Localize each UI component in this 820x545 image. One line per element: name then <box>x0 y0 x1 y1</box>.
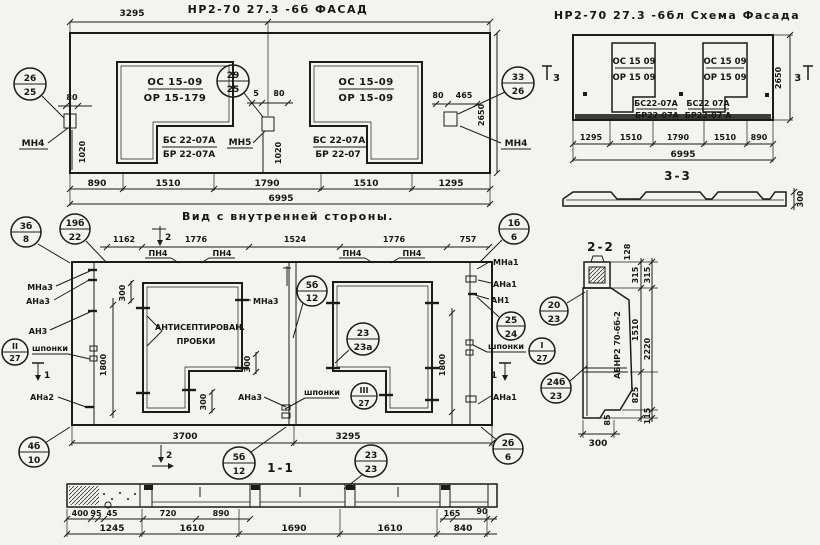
facade-window-2: ОС 15-09 ОР 15-09 БС 22-07А БР 22-07 <box>310 62 422 163</box>
callout-num: 23 <box>365 451 378 461</box>
callout-num: 27 <box>9 354 20 363</box>
dim-1776: 1776 <box>383 235 406 244</box>
dim-1245: 1245 <box>99 524 124 534</box>
window-mark: ОС 15 09 <box>703 57 746 67</box>
window-mark: ОС 15-09 <box>338 77 393 88</box>
callout-5b-12-top: 5б 12 <box>293 276 327 338</box>
callout-num: 26 <box>24 74 37 84</box>
scheme-window-b: ОС 15 09 ОР 15 09 БС22 07А БР22-07 А <box>685 43 747 120</box>
section-2-2-profile <box>583 288 632 418</box>
dim-45: 45 <box>106 509 118 518</box>
facade-bottom-dims: 890 1510 1790 1510 1295 6995 <box>67 173 493 207</box>
note-antiseptic: АНТИСЕПТИРОВАН. <box>155 323 245 332</box>
dim-1162: 1162 <box>113 235 135 244</box>
dim-315: 315 <box>643 266 652 283</box>
anchor-label: АНа1 <box>493 393 517 402</box>
section-3-3-profile <box>563 192 786 206</box>
anchor-label: МН4 <box>22 139 45 149</box>
callout-19b-22: 19б 22 <box>60 214 106 262</box>
anchor-label: АНа2 <box>30 393 54 402</box>
inner-opening-2 <box>326 282 439 412</box>
sill-mark: БС 22-07А <box>313 136 365 146</box>
callout-20-23: 20 23 <box>540 292 585 325</box>
callout-num: 23а <box>354 343 373 353</box>
callout-num: 12 <box>306 294 319 304</box>
anchor-label: МН5 <box>229 138 252 148</box>
inner-left-labels: МНа3 АНа3 АН3 шпонки II 27 1 АНа2 <box>2 270 97 407</box>
dim-1510: 1510 <box>631 318 640 341</box>
dim-90: 90 <box>476 507 488 516</box>
anchor-mn4-left: 80 1020 26 25 МН4 <box>14 68 92 170</box>
pn4-label: ПН4 <box>213 249 232 258</box>
callout-num: 23 <box>357 329 370 339</box>
dim-80: 80 <box>273 89 285 98</box>
dim-1524: 1524 <box>284 235 307 244</box>
section-mark-label: 1 <box>44 371 50 381</box>
dim-1776: 1776 <box>185 235 208 244</box>
callout-num: 8 <box>23 235 29 245</box>
section-1-1: 400 95 45 720 890 165 90 1245 1610 1690 … <box>64 484 497 537</box>
dim-115: 115 <box>643 407 652 424</box>
dim-1610: 1610 <box>179 524 204 534</box>
dim-6995: 6995 <box>670 150 695 160</box>
callout-num: 27 <box>358 399 369 408</box>
callout-num: 29 <box>227 71 240 81</box>
callout-num: 1б <box>508 218 521 229</box>
section-1-1-label: 1-1 <box>267 461 295 475</box>
callout-num: I <box>541 341 544 350</box>
dim-300: 300 <box>243 355 252 372</box>
section-mark-label: 2 <box>166 451 172 461</box>
dim-1020: 1020 <box>274 141 283 164</box>
dim-95: 95 <box>90 509 102 518</box>
shponki-label: шпонки <box>32 344 68 353</box>
dim-1510: 1510 <box>155 179 180 189</box>
dim-300: 300 <box>199 393 208 410</box>
section-mark-label: 1 <box>491 371 497 381</box>
dim-2650: 2650 <box>477 103 486 126</box>
callout-num: 25 <box>505 316 518 326</box>
dim-840: 840 <box>454 524 473 534</box>
dim-315: 315 <box>631 266 640 283</box>
inner-bottom-dims: 3700 3295 <box>69 425 495 446</box>
anchor-label: МНа3 <box>27 283 53 292</box>
anchor-label: МНа3 <box>253 297 279 306</box>
callout-num: 33 <box>512 73 525 83</box>
callout-num: 6 <box>511 233 517 243</box>
callout-24b-23: 24б 23 <box>541 366 587 403</box>
anchor-label: АНа1 <box>493 280 517 289</box>
callout-num: 23 <box>365 465 378 475</box>
callout-num: 2б <box>502 438 515 449</box>
pn4-label: ПН4 <box>343 249 362 258</box>
callout-num: 5б <box>306 280 319 291</box>
dim-1800: 1800 <box>438 353 447 376</box>
window-mark: ОС 15 09 <box>612 57 655 67</box>
inner-view-title: Вид с внутренней стороны. <box>182 210 394 223</box>
dim-1510: 1510 <box>353 179 378 189</box>
lifting-loop <box>591 256 604 262</box>
note-antiseptic: ПРОБКИ <box>177 337 216 346</box>
facade-window-1: ОС 15-09 ОР 15-179 БС 22-07А БР 22-07А <box>117 62 233 163</box>
callout-2b-6: 2б 6 <box>481 427 523 464</box>
sill-mark: БР 22-07А <box>163 150 215 160</box>
scheme-height-dim: 2650 <box>773 32 793 123</box>
callout-num: III <box>360 386 369 395</box>
shponki-label: шпонки <box>304 388 340 397</box>
callout-23-23: 23 23 <box>344 445 387 489</box>
dim-1510: 1510 <box>714 133 737 142</box>
dim-825: 825 <box>631 386 640 403</box>
section-mark-label: 3 <box>553 73 560 84</box>
anchor-mn5: 5 80 1020 29 25 МН5 <box>217 65 293 172</box>
dim-300: 300 <box>796 190 805 207</box>
callout-num: 23 <box>548 315 561 325</box>
section-mark-label: 2 <box>165 233 171 243</box>
pn4-labels: ПН4 ПН4 ПН4 ПН4 <box>145 249 425 263</box>
callout-num: 6 <box>505 453 511 463</box>
section-3-3-label: 3-3 <box>664 169 692 183</box>
facade-scheme-view: НР2-70 27.3 -6бл Схема Фасада ОС 15 09 О… <box>542 9 813 163</box>
callout-num: 26 <box>512 87 525 97</box>
dim-1690: 1690 <box>281 524 306 534</box>
callout-num: 10 <box>28 456 41 466</box>
dim-1295: 1295 <box>438 179 463 189</box>
scheme-window-a: ОС 15 09 ОР 15 09 БС22-07А БР22-07А <box>612 43 680 120</box>
dim-720: 720 <box>160 509 177 518</box>
dim-890: 890 <box>213 509 230 518</box>
callout-num: 4б <box>28 441 41 452</box>
section-1-1-dims-row1: 400 95 45 720 890 165 90 <box>64 507 497 522</box>
sill-mark: БР22-07 А <box>685 111 732 120</box>
callout-num: 22 <box>69 233 82 243</box>
window-mark: ОР 15 09 <box>703 73 746 83</box>
window-mark: ОР 15-179 <box>144 93 207 104</box>
callout-num: 12 <box>233 467 246 477</box>
dim-6995: 6995 <box>268 194 293 204</box>
anchor-mn4-right: 80 465 2650 33 26 МН4 <box>432 30 534 176</box>
anchor-label: АН1 <box>491 296 510 305</box>
dim-400: 400 <box>72 509 89 518</box>
callout-4b-10: 4б 10 <box>19 427 70 467</box>
dim-2220: 2220 <box>643 337 652 360</box>
shponki-label: шпонки <box>488 342 524 351</box>
sill-mark: БС 22-07А <box>163 136 215 146</box>
facade-view: НР2-70 27.3 -6б ФАСАД 3295 ОС 15-09 ОР 1… <box>14 3 534 207</box>
anchor-label: МН4 <box>505 139 528 149</box>
section-2-2: 2-2 АБНР2 70-6б-2 128 315 315 1510 2220 … <box>540 240 658 449</box>
panel-stamp: АБНР2 70-6б-2 <box>612 311 622 379</box>
dim-890: 890 <box>88 179 107 189</box>
section-1-1-profile <box>67 484 497 507</box>
ana3-bottom: АНа3 <box>238 393 286 407</box>
inner-right-labels: 1б 6 МНа1 АНа1 АН1 25 24 шпонки I 27 1 А… <box>466 214 555 404</box>
callout-23-23a: 23 23а <box>335 323 379 363</box>
callout-num: 24 <box>505 330 518 340</box>
inner-view: Вид с внутренней стороны. 3б 8 19б 22 11… <box>2 210 555 489</box>
dim-3295: 3295 <box>119 9 144 19</box>
pn4-label: ПН4 <box>403 249 422 258</box>
callout-num: 25 <box>227 85 240 95</box>
section-2-2-label: 2-2 <box>587 240 615 254</box>
dim-1800: 1800 <box>99 353 108 376</box>
sill-mark: БС22-07А <box>634 99 679 108</box>
section-1-1-dims-row2: 1245 1610 1690 1610 840 <box>64 509 497 537</box>
callout-num: 3б <box>20 221 33 232</box>
window-mark: ОР 15 09 <box>612 73 655 83</box>
dim-890: 890 <box>751 133 768 142</box>
callout-num: 5б <box>233 452 246 463</box>
section-mark-label: 3 <box>794 73 801 84</box>
callout-num: 19б <box>66 218 85 229</box>
dim-80: 80 <box>66 93 78 102</box>
anchor-label: АН3 <box>29 327 47 336</box>
dim-1020: 1020 <box>78 140 87 163</box>
callout-num: 27 <box>536 354 547 363</box>
pn4-label: ПН4 <box>149 249 168 258</box>
dim-1790: 1790 <box>667 133 690 142</box>
dim-80: 80 <box>432 91 444 100</box>
section-3-3: 3-3 300 <box>563 169 805 210</box>
dim-85: 85 <box>603 414 612 426</box>
dim-3295: 3295 <box>335 432 360 442</box>
callout-I-27: I 27 <box>529 338 555 364</box>
anchor-label: МНа1 <box>493 258 519 267</box>
callout-num: II <box>12 342 18 351</box>
section-mark-3-left: 3 <box>542 66 560 84</box>
section-mark-2-top: 2 <box>152 226 171 246</box>
dim-300: 300 <box>118 284 127 301</box>
anchor-label: АНа3 <box>26 297 50 306</box>
dim-128: 128 <box>623 243 632 260</box>
callout-num: 20 <box>548 301 561 311</box>
sill-mark: БР 22-07 <box>315 150 360 160</box>
facade-title: НР2-70 27.3 -6б ФАСАД <box>188 3 369 16</box>
anchor-label: АНа3 <box>238 393 262 402</box>
dim-1510: 1510 <box>620 133 643 142</box>
window-mark: ОС 15-09 <box>147 77 202 88</box>
dim-1790: 1790 <box>254 179 279 189</box>
sill-mark: БС22 07А <box>686 99 730 108</box>
dim-165: 165 <box>444 509 461 518</box>
section-mark-2-bottom: 2 <box>152 445 174 469</box>
section-mark-3-right: 3 <box>794 66 813 84</box>
dim-2650: 2650 <box>774 66 783 89</box>
dim-3700: 3700 <box>172 432 197 442</box>
callout-num: 24б <box>547 377 566 388</box>
scheme-bottom-dims: 1295 1510 1790 1510 890 6995 <box>570 120 776 163</box>
dim-465: 465 <box>456 91 473 100</box>
callout-num: 25 <box>24 88 37 98</box>
dim-300: 300 <box>589 439 608 449</box>
sill-mark: БР22-07А <box>635 111 680 120</box>
dim-5: 5 <box>253 89 259 98</box>
blueprint-canvas: НР2-70 27.3 -6б ФАСАД 3295 ОС 15-09 ОР 1… <box>0 0 820 545</box>
window-mark: ОР 15-09 <box>338 93 393 104</box>
dim-1295: 1295 <box>580 133 603 142</box>
scheme-title: НР2-70 27.3 -6бл Схема Фасада <box>554 9 800 22</box>
dim-1610: 1610 <box>377 524 402 534</box>
callout-num: 23 <box>550 392 563 402</box>
callout-1b-6: 1б 6 <box>480 214 529 262</box>
dim-757: 757 <box>460 235 477 244</box>
